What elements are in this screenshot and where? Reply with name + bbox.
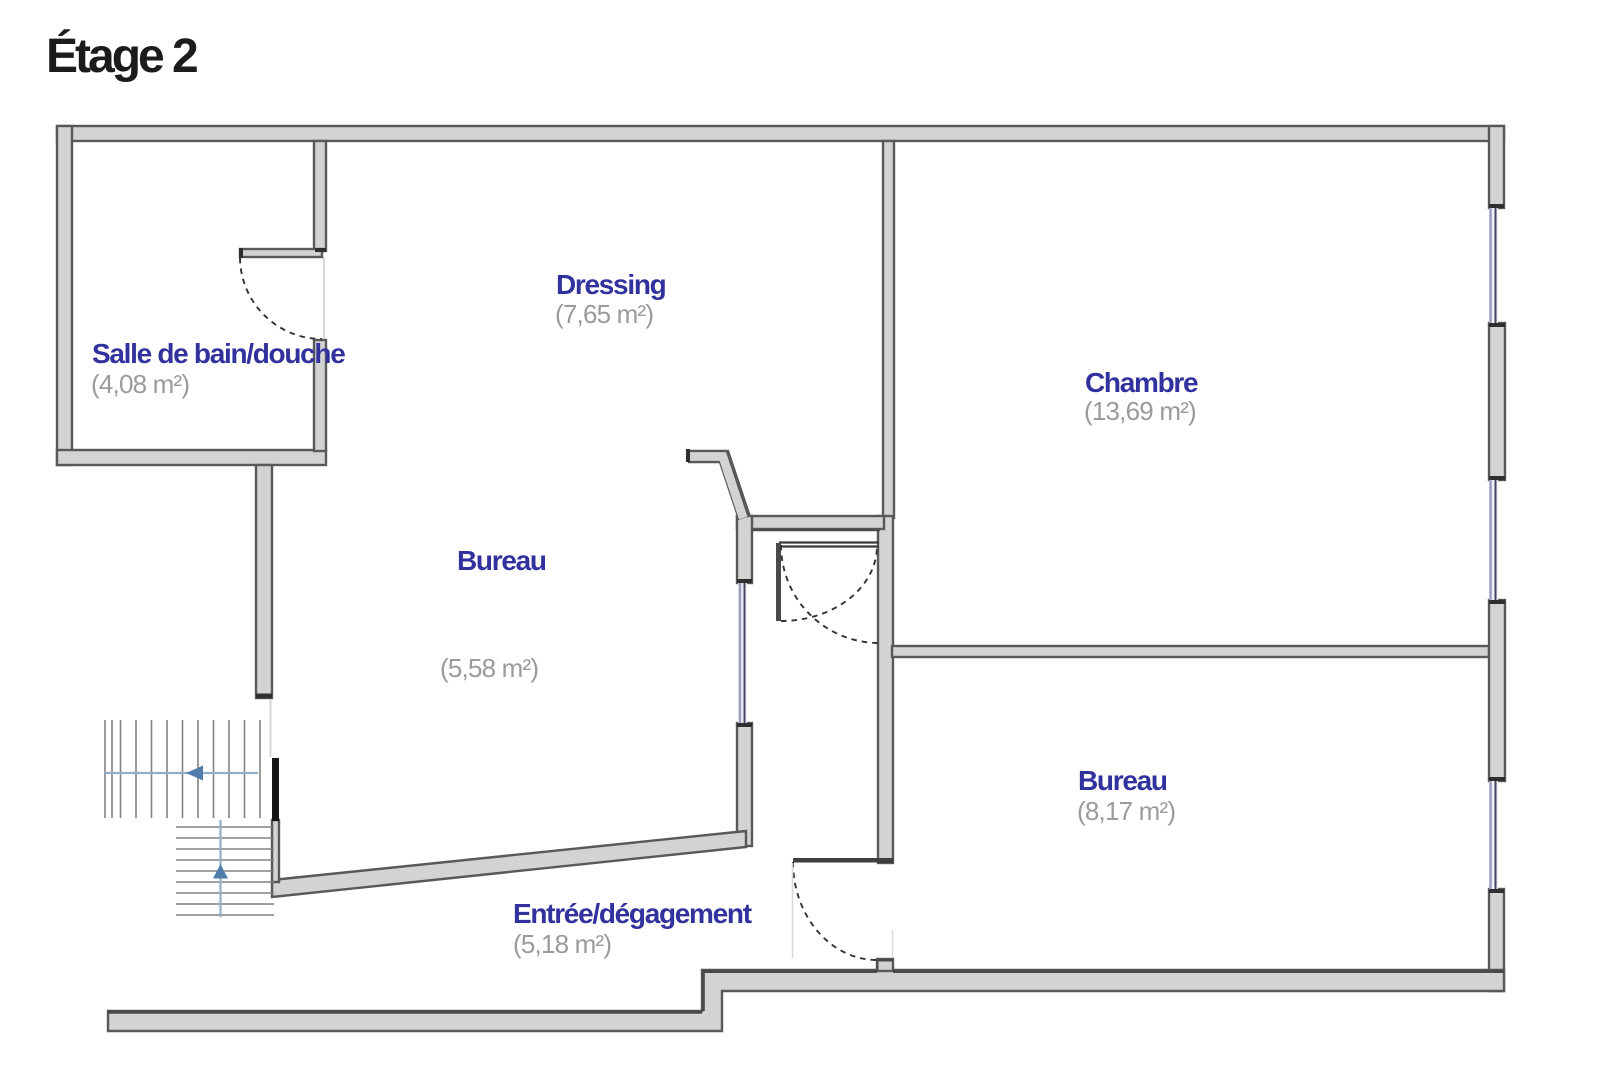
svg-text:(5,18 m²): (5,18 m²) [513, 929, 611, 959]
svg-text:(7,65 m²): (7,65 m²) [555, 299, 653, 329]
svg-text:(4,08 m²): (4,08 m²) [91, 369, 189, 399]
svg-text:(8,17 m²): (8,17 m²) [1077, 796, 1175, 826]
svg-text:Chambre: Chambre [1085, 367, 1198, 398]
svg-text:Entrée/dégagement: Entrée/dégagement [513, 898, 752, 929]
svg-text:Étage 2: Étage 2 [46, 29, 197, 83]
svg-text:Dressing: Dressing [556, 269, 666, 300]
svg-text:Bureau: Bureau [1078, 765, 1167, 796]
svg-text:Salle de bain/douche: Salle de bain/douche [92, 338, 345, 369]
svg-text:Bureau: Bureau [457, 545, 546, 576]
svg-text:(13,69 m²): (13,69 m²) [1084, 396, 1196, 426]
svg-text:(5,58 m²): (5,58 m²) [440, 653, 538, 683]
